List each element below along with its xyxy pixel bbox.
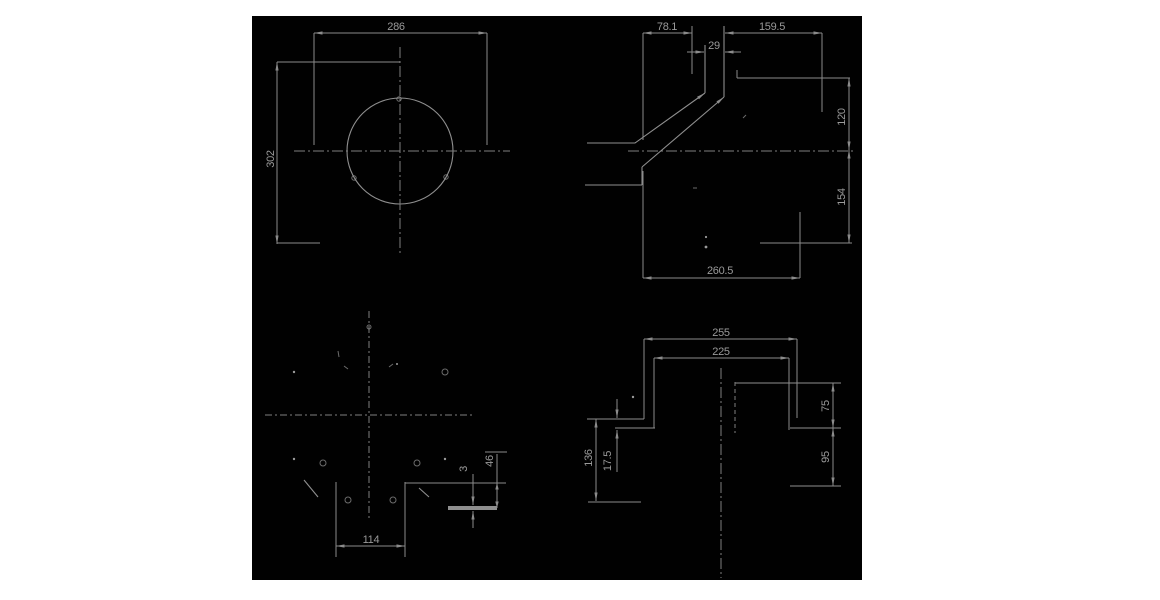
faint-mark [396,363,398,365]
dim-label-outer-width: 255 [712,327,730,339]
dim-label-tube-width: 29 [708,40,720,52]
faint-mark [705,236,707,238]
drawing-page: 286 302 78.1 29 [0,0,1160,600]
dim-label-plate-thickness: 3 [458,466,470,472]
dim-label-below-axis: 154 [836,188,848,206]
dim-label-reach: 159.5 [759,21,785,33]
plate-section [448,506,497,510]
dim-label-depth: 46 [484,455,496,467]
dim-label-above-axis: 120 [836,108,848,126]
dim-label-offset: 78.1 [657,21,677,33]
dim-label-lower-height: 95 [820,451,832,463]
dim-label-width: 286 [387,21,405,33]
faint-mark [293,371,295,373]
faint-mark [444,458,446,460]
drawing-panel [252,16,862,580]
dim-label-left-height: 136 [583,449,595,467]
faint-mark [632,396,634,398]
dim-label-slot-width: 114 [363,534,380,546]
dim-label-upper-height: 75 [820,400,832,412]
dim-label-step: 17.5 [602,451,614,471]
dim-label-height: 302 [265,150,277,168]
faint-mark [705,246,708,249]
engineering-drawing: 286 302 78.1 29 [0,0,1160,600]
dim-label-total-run: 260.5 [707,265,733,277]
dim-label-inner-width: 225 [712,346,730,358]
faint-mark [293,458,295,460]
